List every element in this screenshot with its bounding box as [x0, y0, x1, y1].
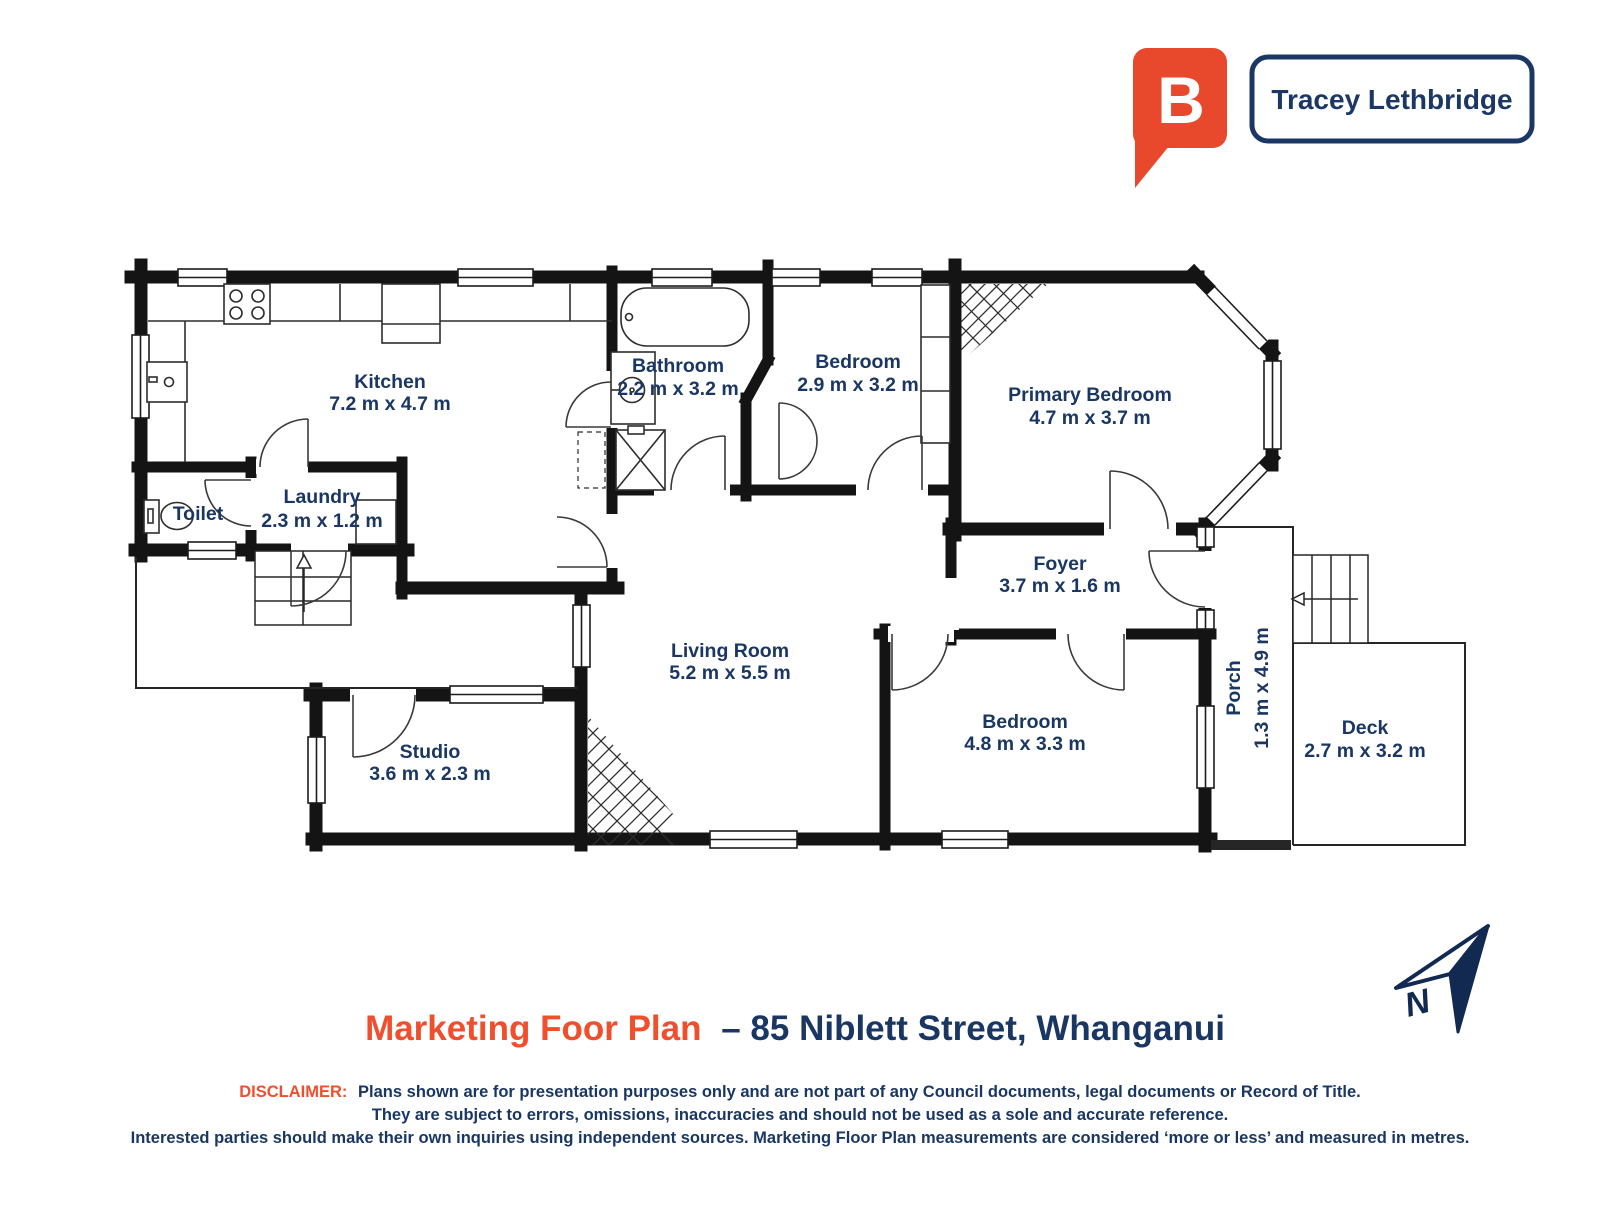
svg-text:5.2 m x 5.5 m: 5.2 m x 5.5 m — [669, 662, 790, 684]
window — [308, 737, 325, 803]
door-bathroom — [671, 436, 725, 490]
stairs-south — [255, 551, 351, 625]
plan-title: Marketing Foor Plan – 85 Niblett Street,… — [365, 1009, 1225, 1048]
page: { "brand": { "logo_letter": "B", "agent_… — [0, 0, 1600, 1200]
north-arrow: N — [1396, 926, 1488, 1032]
svg-text:Bedroom: Bedroom — [815, 351, 901, 373]
brand-logo: B Tracey Lethbridge — [1133, 48, 1532, 188]
svg-text:3.7 m x 1.6 m: 3.7 m x 1.6 m — [999, 575, 1120, 597]
disclaimer-label: DISCLAIMER: — [239, 1083, 347, 1101]
patio-outline — [136, 557, 577, 688]
window — [450, 686, 543, 703]
disclaimer-line3: Interested parties should make their own… — [131, 1129, 1470, 1147]
window — [1197, 706, 1214, 788]
svg-text:Bathroom: Bathroom — [632, 355, 724, 377]
room-label-porch: Porch 1.3 m x 4.9 m — [1223, 627, 1273, 748]
room-label-kitchen: Kitchen 7.2 m x 4.7 m — [329, 371, 450, 415]
agent-name: Tracey Lethbridge — [1271, 84, 1512, 115]
svg-text:Kitchen: Kitchen — [354, 371, 426, 393]
svg-text:2.3 m x 1.2 m: 2.3 m x 1.2 m — [261, 510, 382, 532]
room-label-deck: Deck 2.7 m x 3.2 m — [1304, 717, 1425, 762]
door-bedroom3-a — [892, 634, 948, 690]
floor-plan-canvas: Kitchen 7.2 m x 4.7 m Toilet Laundry 2.3… — [0, 0, 1600, 1200]
plan-title-highlight: Marketing Foor Plan — [365, 1009, 701, 1048]
plan-title-address: – 85 Niblett Street, Whanganui — [721, 1009, 1225, 1048]
svg-text:7.2 m x 4.7 m: 7.2 m x 4.7 m — [329, 393, 450, 415]
dishwasher-dashed — [578, 432, 605, 488]
svg-text:2.2 m x 3.2 m: 2.2 m x 3.2 m — [617, 378, 738, 400]
room-labels: Kitchen 7.2 m x 4.7 m Toilet Laundry 2.3… — [173, 351, 1426, 785]
bay-window — [1207, 463, 1267, 525]
window — [1197, 527, 1214, 547]
door-bedroom3-b — [1068, 634, 1124, 690]
svg-text:Bedroom: Bedroom — [982, 711, 1068, 733]
disclaimer-line2: They are subject to errors, omissions, i… — [372, 1106, 1228, 1124]
window — [1264, 361, 1281, 449]
north-label: N — [1401, 982, 1435, 1025]
room-label-bathroom: Bathroom 2.2 m x 3.2 m — [617, 355, 738, 400]
door-kitchen-hall — [566, 382, 611, 427]
window — [178, 269, 227, 286]
door-primary — [1110, 471, 1168, 529]
svg-text:Laundry: Laundry — [284, 486, 361, 508]
svg-text:Living Room: Living Room — [671, 640, 789, 662]
window — [573, 605, 590, 667]
svg-text:4.8 m x 3.3 m: 4.8 m x 3.3 m — [964, 733, 1085, 755]
svg-text:3.6 m x 2.3 m: 3.6 m x 2.3 m — [369, 763, 490, 785]
room-label-living: Living Room 5.2 m x 5.5 m — [669, 640, 790, 684]
fixtures — [144, 284, 950, 544]
door-bedroom2 — [868, 436, 922, 490]
agent-name-box: Tracey Lethbridge — [1252, 57, 1532, 141]
stairs-porch — [1292, 555, 1368, 643]
window — [188, 542, 236, 559]
svg-text:Primary Bedroom: Primary Bedroom — [1008, 384, 1172, 406]
disclaimer-line1: DISCLAIMER: Plans shown are for presenta… — [239, 1083, 1360, 1101]
room-label-toilet: Toilet — [173, 503, 224, 525]
room-label-primary: Primary Bedroom 4.7 m x 3.7 m — [1008, 384, 1172, 429]
stove — [224, 284, 270, 324]
bathtub — [621, 288, 749, 346]
svg-text:Porch: Porch — [1223, 660, 1245, 715]
floor-plan: Kitchen 7.2 m x 4.7 m Toilet Laundry 2.3… — [131, 190, 1465, 956]
closet — [921, 285, 950, 443]
window — [710, 831, 797, 848]
svg-text:Studio: Studio — [400, 741, 461, 763]
svg-text:Toilet: Toilet — [173, 503, 224, 525]
svg-text:Deck: Deck — [1342, 717, 1389, 739]
svg-text:4.7 m x 3.7 m: 4.7 m x 3.7 m — [1029, 407, 1150, 429]
window — [652, 269, 712, 286]
svg-text:Foyer: Foyer — [1033, 553, 1087, 575]
hearth-hatch-living — [450, 690, 796, 956]
shower — [616, 426, 665, 490]
window — [1197, 610, 1214, 629]
bay-window — [1207, 287, 1267, 349]
logo-bubble-icon: B — [1133, 48, 1227, 188]
kitchen-sink — [147, 362, 187, 402]
window — [772, 269, 820, 286]
room-label-foyer: Foyer 3.7 m x 1.6 m — [999, 553, 1120, 597]
window — [942, 831, 1008, 848]
room-label-bedroom3: Bedroom 4.8 m x 3.3 m — [964, 711, 1085, 755]
disclaimer: DISCLAIMER: Plans shown are for presenta… — [131, 1083, 1470, 1147]
room-label-bedroom2: Bedroom 2.9 m x 3.2 m — [797, 351, 918, 396]
window — [872, 269, 922, 286]
svg-text:2.9 m x 3.2 m: 2.9 m x 3.2 m — [797, 374, 918, 396]
logo-letter: B — [1157, 63, 1205, 137]
svg-text:1.3 m x 4.9 m: 1.3 m x 4.9 m — [1251, 627, 1273, 748]
bifold-closet-doors — [779, 403, 817, 479]
window — [458, 269, 533, 286]
front-door — [1149, 551, 1205, 607]
svg-text:2.7 m x 3.2 m: 2.7 m x 3.2 m — [1304, 740, 1425, 762]
door-kitchen-living — [557, 517, 607, 567]
